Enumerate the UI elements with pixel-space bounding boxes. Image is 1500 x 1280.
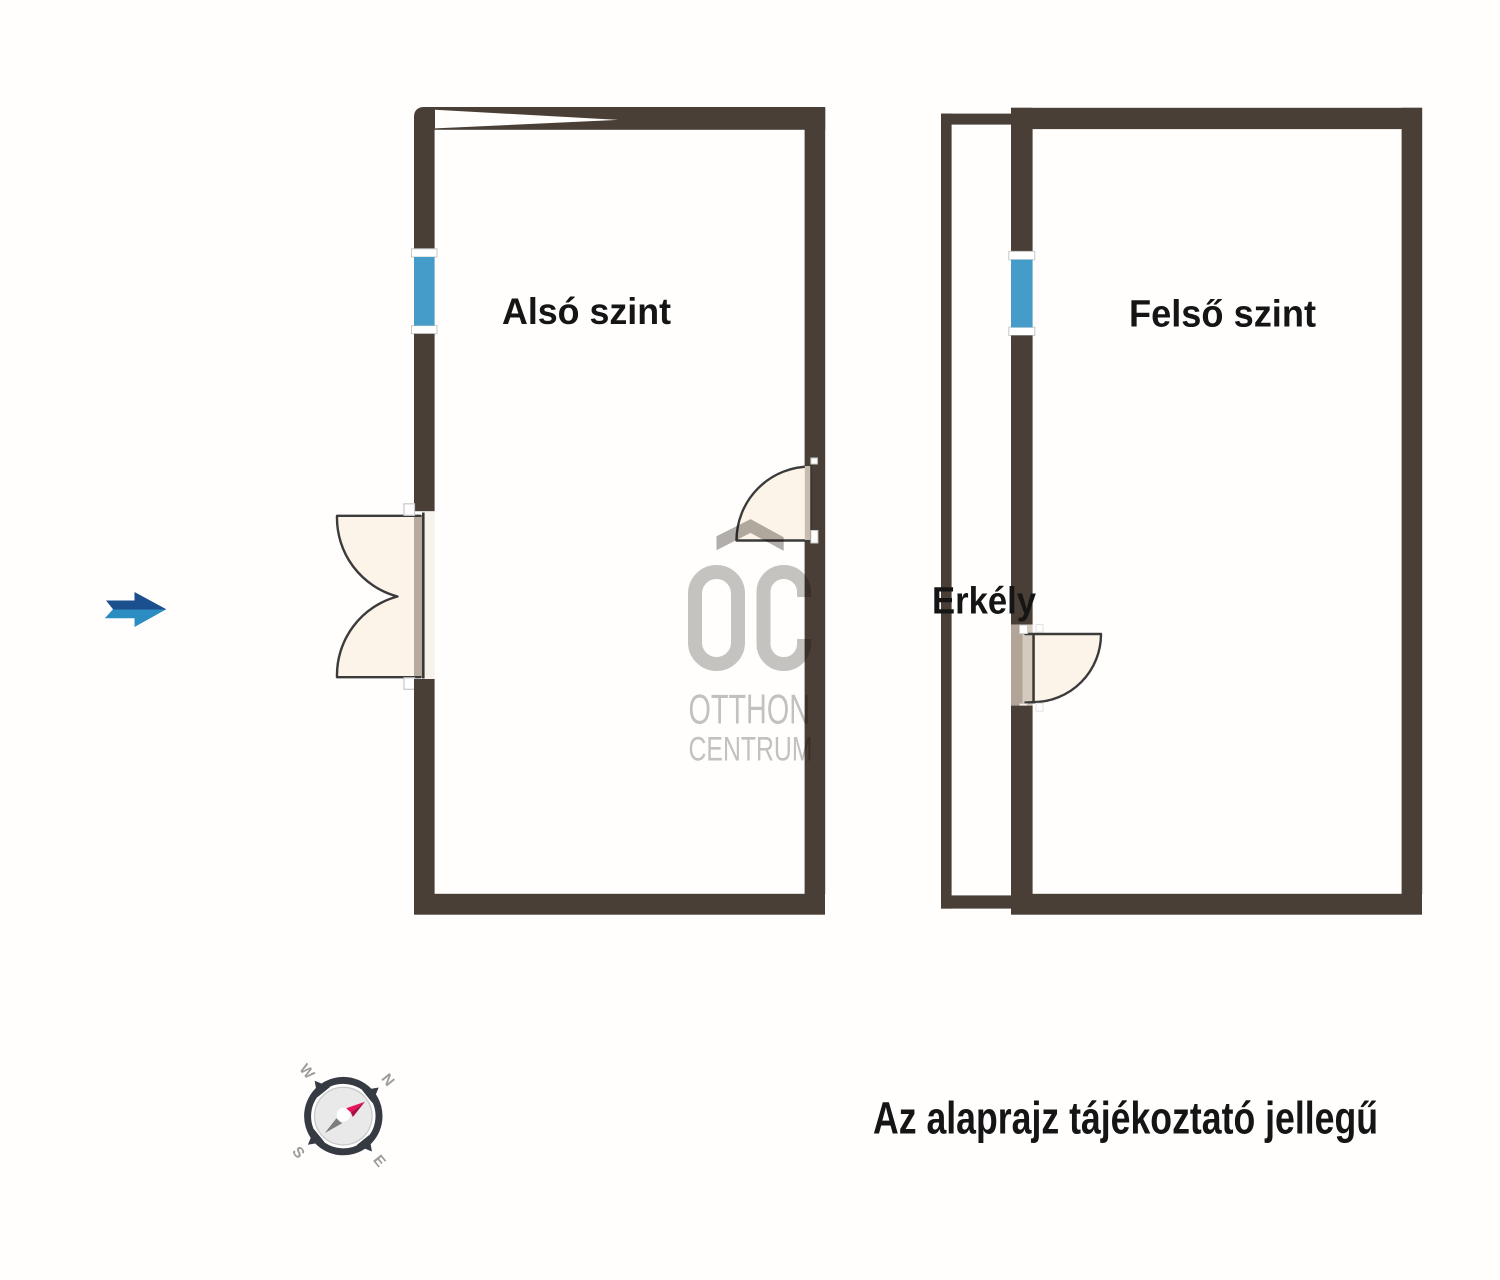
svg-text:CENTRUM: CENTRUM <box>689 731 813 769</box>
svg-text:OTTHON: OTTHON <box>689 686 811 733</box>
